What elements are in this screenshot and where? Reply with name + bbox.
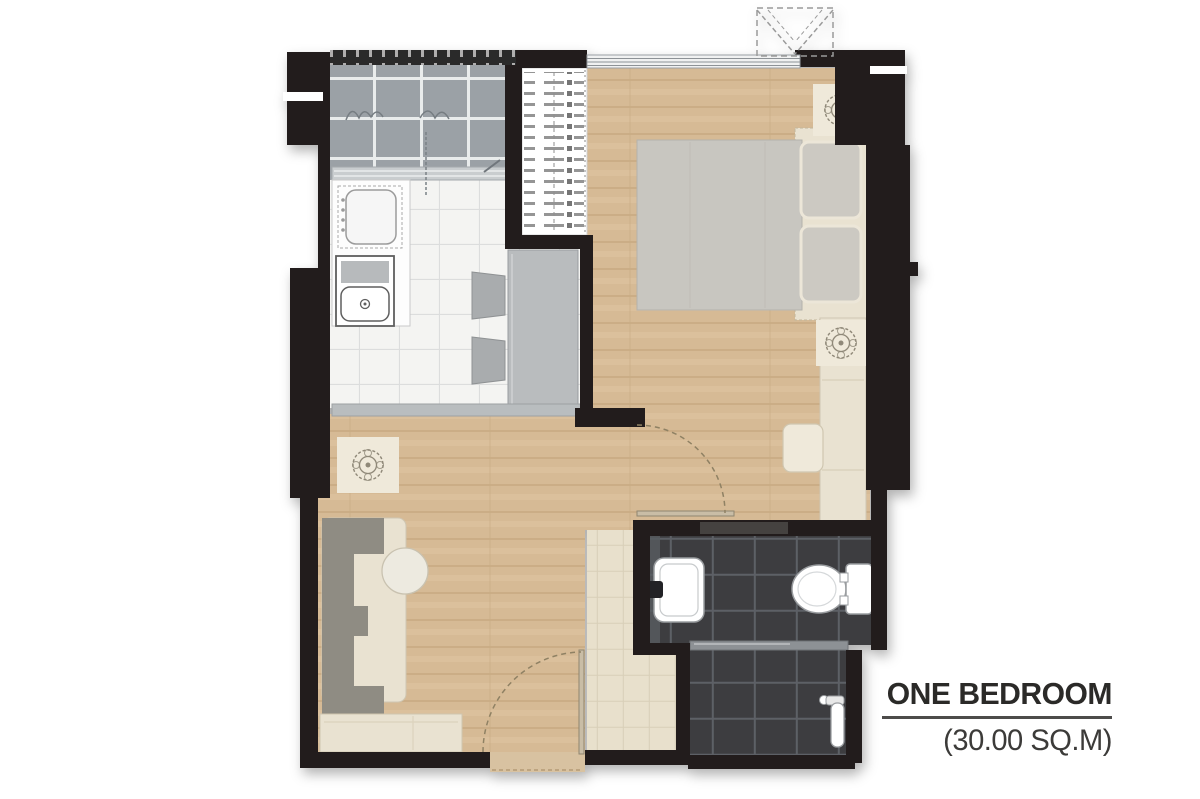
wall-bedroom-door <box>575 408 645 427</box>
kitchen-threshold <box>332 404 581 416</box>
wall-shower-left <box>676 643 690 763</box>
wall-right <box>866 145 910 490</box>
bathroom-door <box>700 522 788 534</box>
wall-kitchen-right <box>580 249 593 414</box>
plan-area: (30.00 SQ.M) <box>875 724 1112 757</box>
floor-plan-image: ONE BEDROOM (30.00 SQ.M) <box>0 0 1200 799</box>
label-divider <box>882 716 1112 719</box>
unit-plan <box>283 8 918 772</box>
wall-wardrobe-left <box>505 50 522 248</box>
toilet-hinge <box>840 596 848 605</box>
dining-table <box>508 250 578 408</box>
wall-bathroom-left <box>633 520 650 655</box>
dining-chair <box>472 337 505 384</box>
coffee-table <box>382 548 428 594</box>
wall-vent-slot <box>283 92 323 101</box>
balcony-floor <box>330 64 516 180</box>
plan-title: ONE BEDROOM <box>875 678 1112 711</box>
wall-left-thin <box>318 145 330 268</box>
sink-drain-dot <box>364 303 367 306</box>
wall-bottom-shower <box>688 755 855 769</box>
pillow <box>801 226 861 302</box>
wall-bathroom-right <box>871 490 887 650</box>
entrance-threshold <box>490 752 585 772</box>
wall-left-mid <box>290 268 330 498</box>
wall-bottom-mid <box>585 750 690 765</box>
wall-wardrobe-bottom <box>505 235 593 249</box>
wall-bottom-left <box>300 752 490 768</box>
shower-screen <box>690 641 848 650</box>
stove <box>346 190 396 244</box>
shower-head <box>831 703 844 747</box>
bedroom-window <box>587 55 800 68</box>
pillow <box>801 142 861 218</box>
vanity-stool <box>783 424 823 472</box>
ac-outdoor-unit <box>757 8 833 56</box>
bed <box>637 140 802 310</box>
wall-shower-right <box>846 650 862 763</box>
plan-label: ONE BEDROOM (30.00 SQ.M) <box>868 678 1112 757</box>
tv-cabinet <box>320 714 462 752</box>
toilet-tank <box>846 564 872 614</box>
wall-right-corner <box>835 50 905 145</box>
wall-wardrobe-top <box>505 50 587 68</box>
dining-chair <box>472 272 505 319</box>
toilet-hinge <box>840 573 848 582</box>
wall-vent-slot <box>870 66 907 74</box>
sink-drainboard <box>341 261 389 283</box>
wall-left-bottom <box>300 498 318 756</box>
balcony-louver <box>330 50 516 65</box>
wall-right-step <box>866 262 918 276</box>
